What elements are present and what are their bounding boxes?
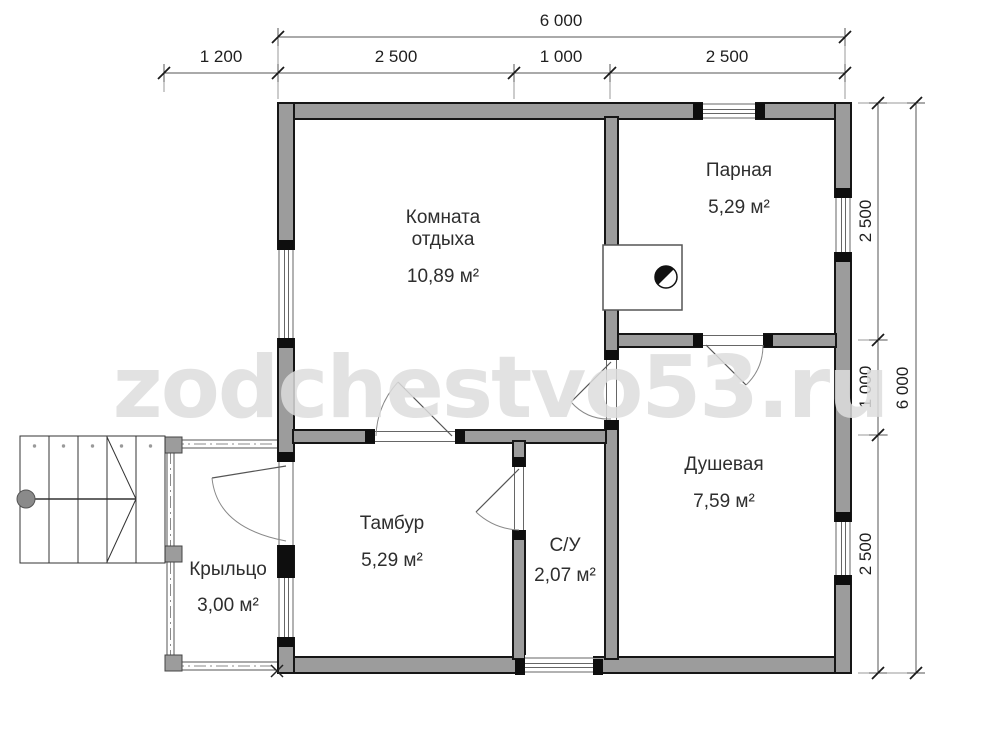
- door-komnata: [365, 382, 465, 445]
- room-label-dushevaya: Душевая 7,59 м²: [684, 454, 763, 513]
- wall-exterior-top: [278, 103, 851, 119]
- room-name: Комната отдыха: [383, 207, 503, 251]
- room-name: Парная: [706, 160, 772, 182]
- floor-plan-drawing: [0, 0, 1000, 750]
- door-parnaya: [693, 332, 773, 385]
- stairs: [17, 436, 165, 563]
- room-label-kryltso: Крыльцо 3,00 м²: [189, 559, 267, 617]
- door-su: [476, 457, 527, 540]
- window-dushevaya: [833, 512, 853, 585]
- room-area: 5,29 м²: [706, 197, 772, 219]
- room-area: 5,29 м²: [360, 550, 425, 572]
- room-label-parnaya: Парная 5,29 м²: [706, 160, 772, 219]
- door-dushevaya: [571, 350, 620, 430]
- floor-plan-canvas: zodchestvo53.ru 6 000 1 200 2 500 1 000 …: [0, 0, 1000, 750]
- room-area: 3,00 м²: [189, 595, 267, 617]
- room-name: Душевая: [684, 454, 763, 476]
- dim-right-seg-1: 1 000: [856, 366, 876, 409]
- window-left: [276, 240, 296, 348]
- stair-direction-start-icon: [17, 490, 35, 508]
- window-su: [515, 655, 603, 675]
- window-parnaya-right: [833, 188, 853, 262]
- room-name: Крыльцо: [189, 559, 267, 581]
- room-area: 2,07 м²: [534, 565, 596, 587]
- window-tambur: [276, 578, 296, 647]
- room-name: С/У: [534, 535, 596, 557]
- room-name: Тамбур: [360, 513, 425, 535]
- room-label-tambur: Тамбур 5,29 м²: [360, 513, 425, 572]
- window-parnaya-top: [693, 101, 765, 121]
- dim-top-seg-1: 2 500: [375, 47, 418, 67]
- room-label-komnata-otdyha: Комната отдыха 10,89 м²: [383, 207, 503, 288]
- dim-right-seg-2: 2 500: [856, 533, 876, 576]
- stove-icon: [603, 245, 682, 310]
- porch-railing: [167, 440, 278, 670]
- room-area: 7,59 м²: [684, 491, 763, 513]
- dim-right-seg-0: 2 500: [856, 200, 876, 243]
- room-label-su: С/У 2,07 м²: [534, 535, 596, 587]
- dim-top-seg-3: 2 500: [706, 47, 749, 67]
- dim-top-total: 6 000: [540, 11, 583, 31]
- dim-top-seg-0: 1 200: [200, 47, 243, 67]
- dim-right-total: 6 000: [893, 367, 913, 410]
- dim-top-seg-2: 1 000: [540, 47, 583, 67]
- room-area: 10,89 м²: [383, 266, 503, 288]
